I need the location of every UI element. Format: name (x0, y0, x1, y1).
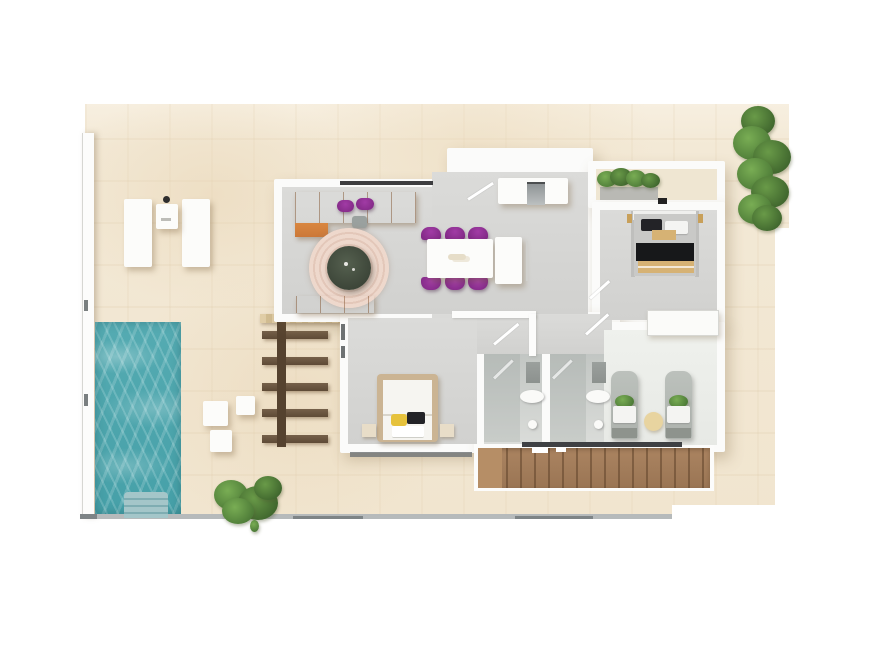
table-decor-icon (352, 268, 355, 271)
boundary-line-segment (293, 516, 363, 519)
window-strip (340, 181, 433, 185)
kitchen-island (495, 237, 522, 284)
corner-sofa-chaise (295, 223, 328, 237)
island-edge (526, 241, 528, 281)
corridor-wall-h (452, 311, 536, 318)
mirror-cabinet (526, 362, 540, 383)
boundary-line-segment (80, 514, 97, 519)
pergola-slat (262, 435, 328, 443)
wall-sconce-icon (698, 214, 703, 223)
floor-plan-image (0, 0, 870, 652)
outdoor-pouf (210, 430, 232, 452)
nightstand (440, 424, 454, 437)
boundary-wall-left (82, 133, 94, 517)
coffee-table (327, 246, 371, 290)
open-book-icon (392, 426, 424, 438)
outdoor-pouf (236, 396, 255, 415)
toilet (528, 420, 537, 429)
pergola-post (277, 321, 286, 447)
stair-wall-tab (556, 447, 566, 452)
round-pouf (644, 412, 663, 431)
wardrobe (647, 310, 719, 336)
shower-enclosure (550, 354, 586, 442)
shower-enclosure (484, 354, 520, 442)
plot-trim-corner (672, 505, 782, 520)
pergola-slat (262, 331, 328, 339)
bed-base (666, 428, 691, 438)
table-decor-icon (344, 262, 348, 266)
glass-wall-shadow (350, 452, 472, 457)
boundary-hinge-icon (84, 394, 88, 406)
bed-base (612, 428, 637, 438)
cooktop-icon (527, 182, 545, 205)
pool-steps (124, 492, 168, 518)
pillow (407, 412, 425, 424)
window-frame-icon (341, 324, 345, 340)
dining-chair (468, 277, 488, 290)
sofa-cushion (337, 200, 354, 212)
parasol-base-icon (163, 196, 170, 203)
bench-sofa (296, 296, 374, 313)
wall-sconce-icon (627, 214, 632, 223)
dining-chair (445, 277, 465, 290)
bathroom-sink (520, 390, 544, 403)
planter-trough (600, 187, 658, 200)
sun-lounger (182, 199, 210, 267)
pillow-yellow (391, 414, 407, 426)
stair-landing (478, 448, 502, 488)
staircase (478, 448, 710, 488)
window-frame-icon (341, 346, 345, 358)
tree-foliage (752, 205, 782, 231)
bed-blanket (636, 243, 694, 261)
ottoman (352, 216, 367, 228)
corridor-wall-v (529, 314, 536, 356)
outdoor-pouf (203, 401, 228, 426)
stair-wall-tab (532, 447, 548, 453)
bush-foliage (222, 498, 254, 524)
planter-foliage (641, 173, 660, 188)
sofa-cushion (356, 198, 374, 210)
bush-sprig (250, 520, 259, 532)
table-items-icon (161, 218, 171, 221)
pergola-slat (262, 357, 328, 365)
toilet (594, 420, 603, 429)
pillow (667, 406, 690, 423)
plot-trim-right (775, 228, 795, 520)
side-table (156, 204, 178, 229)
pergola-slat (262, 383, 328, 391)
tableware-icon (448, 254, 466, 260)
bathroom-sink (586, 390, 610, 403)
boundary-line-segment (515, 516, 593, 519)
bush-foliage (254, 476, 282, 500)
dining-chair (421, 277, 441, 290)
bed-footer-line (638, 266, 694, 268)
boundary-hinge-icon (84, 300, 88, 311)
swimming-pool (95, 322, 181, 514)
bed-runner (652, 230, 676, 240)
balcony-item-icon (658, 198, 667, 204)
mirror-cabinet (592, 362, 606, 383)
nightstand (362, 424, 376, 437)
pergola-slat (262, 409, 328, 417)
pillow (613, 406, 636, 423)
sun-lounger (124, 199, 152, 267)
